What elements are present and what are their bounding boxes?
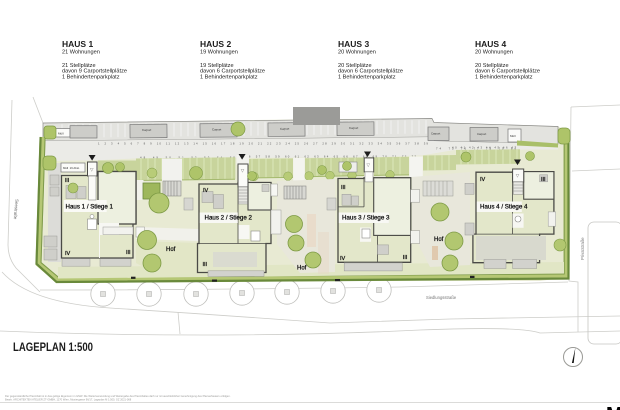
svg-text:HAUS 4: HAUS 4 bbox=[475, 39, 506, 49]
svg-text:IV: IV bbox=[65, 251, 71, 257]
svg-text:1 Behindertenparkplatz: 1 Behindertenparkplatz bbox=[475, 74, 533, 80]
svg-text:1 Behindertenparkplatz: 1 Behindertenparkplatz bbox=[338, 74, 396, 80]
svg-text:Müll: Müll bbox=[58, 131, 64, 135]
svg-text:Der gegenständliche Planinhalt: Der gegenständliche Planinhalt ist in da… bbox=[5, 394, 231, 398]
svg-text:HAUS 3: HAUS 3 bbox=[338, 39, 369, 49]
svg-text:▽: ▽ bbox=[241, 168, 245, 173]
svg-text:Haus 3 / Stiege 3: Haus 3 / Stiege 3 bbox=[342, 215, 390, 222]
svg-text:1 Behindertenparkplatz: 1 Behindertenparkplatz bbox=[62, 74, 120, 80]
svg-text:▽: ▽ bbox=[516, 173, 520, 178]
svg-text:III: III bbox=[341, 185, 346, 191]
svg-text:IV: IV bbox=[340, 256, 346, 262]
svg-text:Haus 2 / Stiege 2: Haus 2 / Stiege 2 bbox=[205, 215, 253, 222]
svg-text:Carport: Carport bbox=[280, 127, 290, 131]
svg-text:1 2 3 4 5 6 7 8 9 10: 1 2 3 4 5 6 7 8 9 10 11 12 13 14 15 16 1… bbox=[98, 141, 428, 145]
svg-text:Carport: Carport bbox=[431, 132, 441, 136]
svg-text:Haus 4 / Stiege 4: Haus 4 / Stiege 4 bbox=[480, 204, 528, 211]
svg-text:III: III bbox=[541, 177, 546, 183]
svg-text:HAUS 2: HAUS 2 bbox=[200, 39, 231, 49]
svg-text:Müll: Müll bbox=[510, 134, 516, 138]
svg-text:Hof: Hof bbox=[297, 266, 307, 272]
svg-text:Haus 1 / Stiege 1: Haus 1 / Stiege 1 bbox=[66, 204, 114, 211]
svg-text:HAUS 1: HAUS 1 bbox=[62, 39, 93, 49]
svg-text:20 Wohnungen: 20 Wohnungen bbox=[475, 50, 513, 56]
svg-text:LAGEPLAN 1:500: LAGEPLAN 1:500 bbox=[13, 342, 93, 354]
svg-text:19 Wohnungen: 19 Wohnungen bbox=[200, 50, 238, 56]
svg-text:▽: ▽ bbox=[90, 167, 94, 172]
svg-text:III: III bbox=[403, 255, 408, 261]
svg-text:Carport: Carport bbox=[349, 126, 359, 130]
svg-text:Bearb. ARCHITEKTEN ATELIER ZT-: Bearb. ARCHITEKTEN ATELIER ZT-GMBH, 1170… bbox=[5, 398, 132, 402]
svg-text:Carport: Carport bbox=[142, 128, 152, 132]
svg-text:Hof: Hof bbox=[434, 237, 444, 243]
svg-text:III: III bbox=[65, 178, 69, 184]
svg-text:III: III bbox=[126, 250, 131, 256]
svg-text:Hof: Hof bbox=[166, 247, 176, 253]
svg-text:IV: IV bbox=[203, 188, 209, 194]
svg-text:III: III bbox=[203, 262, 208, 268]
svg-text:M: M bbox=[606, 404, 620, 410]
svg-text:Privatstraße: Privatstraße bbox=[580, 237, 585, 260]
svg-text:20 Wohnungen: 20 Wohnungen bbox=[338, 50, 376, 56]
svg-text:▽: ▽ bbox=[367, 163, 371, 168]
svg-text:1 Behindertenparkplatz: 1 Behindertenparkplatz bbox=[200, 74, 258, 80]
svg-text:Siedlungsstraße: Siedlungsstraße bbox=[426, 295, 457, 300]
svg-text:IV: IV bbox=[480, 177, 486, 183]
svg-text:Carport: Carport bbox=[212, 127, 222, 131]
svg-text:Müll 16 Abst.: Müll 16 Abst. bbox=[63, 166, 80, 170]
svg-text:Carport: Carport bbox=[477, 132, 487, 136]
svg-text:21 Wohnungen: 21 Wohnungen bbox=[62, 50, 100, 56]
